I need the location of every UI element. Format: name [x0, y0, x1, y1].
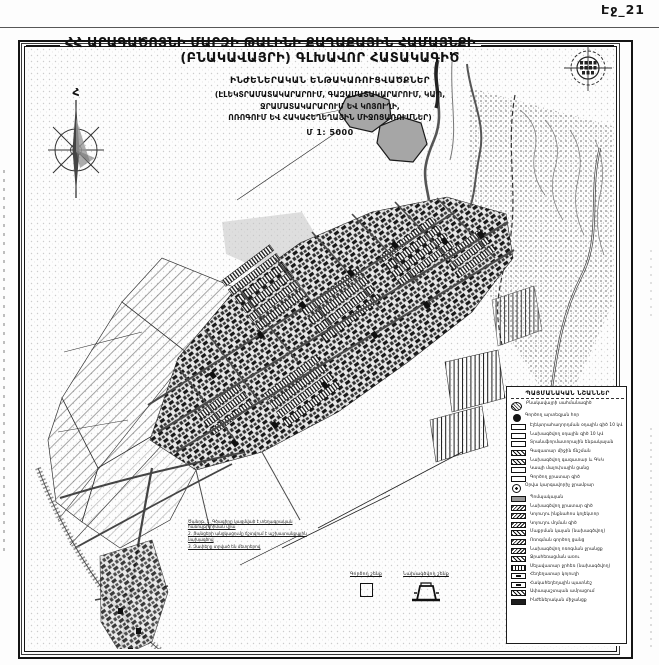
- subtitle-line2: (ԷԼԵԿՏՐԱՄԱՏԱԿԱՐԱՐՈՒՄ, ԳԱԶԱՄԱՏԱԿԱՐԱՐՈՒՄ, …: [158, 90, 502, 100]
- legend-item: Հակահեղեղային պատնեշ: [511, 582, 624, 588]
- plan-sheet: Էջ_21 ՀՀ ԱՐԱԳԱԾՈՏՆԻ ՄԱՐԶԻ ԹԱԼԻՆԻ ՔԱՂԱՔԱՅ…: [0, 0, 659, 665]
- legend-item: Բնակավայրի սահմանագիծ: [511, 402, 624, 411]
- notes-block: Ծանոթ. 1. Գծագիրը կազմված է տեղագրական հ…: [188, 519, 308, 551]
- legend-item: Գործող ջրատար գիծ: [511, 476, 624, 482]
- rect-hatch2-icon: [511, 522, 526, 528]
- legend-item: Նախագծվող ոռոգման ջրանցք: [511, 548, 624, 554]
- dark-circle-icon: [513, 414, 521, 422]
- top-rule-line: [0, 27, 659, 28]
- legend-item: Էլեկտրահաղորդման օդային գիծ 10 կՎ: [511, 424, 624, 430]
- note-line: Ծանոթ. 1. Գծագիրը կազմված է տեղագրական հ…: [188, 519, 308, 530]
- note-line: 2. Ցանցերի անցկացումը ճշտվում է աշխատանք…: [188, 531, 308, 542]
- legend-items: Բնակավայրի սահմանագիծԳործող արտեզյան հոր…: [511, 402, 624, 605]
- legend-item: Կապի մալուխային ցանց: [511, 467, 624, 473]
- legend-item: Սելավատար ջրհեռ (նախագծվող): [511, 565, 624, 571]
- subtitle-line4: ՈՌՈԳՈՒՄ ԵՎ ՀԱԿԱՀԵՂԵՂԱՅԻՆ ՄԻՋՈՑԱՌՈՒՄՆԵՐ): [158, 113, 502, 123]
- legend-item-label: Նախագծվող ոռոգման ջրանցք: [530, 548, 603, 553]
- rect-hatch-icon: [511, 450, 526, 456]
- legend-item-label: Հակահեղեղային պատնեշ: [530, 582, 592, 587]
- footer-symbol-existing-label: Գործող շենք: [340, 572, 392, 577]
- subtitle-line1: ԻՆԺԵՆԵՐԱԿԱՆ ԵՆԹԱԿԱՌՈՒՑՎԱԾՔՆԵՐ: [158, 76, 502, 88]
- hatch-blob-icon: [511, 402, 522, 411]
- sheet-title-line1: ՀՀ ԱՐԱԳԱԾՈՏՆԻ ՄԱՐԶԻ ԹԱԼԻՆԻ ՔԱՂԱՔԱՅԻՆ ՀԱՄ…: [65, 36, 476, 51]
- legend-item: Մաքրման կայան (նախագծվող): [511, 530, 624, 536]
- legend-item: Գործող արտեզյան հոր: [511, 414, 624, 422]
- legend-item-label: Գործող արտեզյան հոր: [525, 414, 579, 419]
- rect-dark-icon: [511, 599, 526, 605]
- legend-item: Ինժեներական միջանցք: [511, 599, 624, 605]
- footer-symbol-existing: Գործող շենք: [340, 572, 392, 604]
- legend-box: ՊԱՅՄԱՆԱԿԱՆ ՆՇԱՆՆԵՐ Բնակավայրի սահմանագիծ…: [506, 386, 627, 644]
- rect-gray-icon: [511, 496, 526, 502]
- compass-rose-icon: Հ: [44, 78, 110, 202]
- rect-outline-icon: [511, 424, 526, 430]
- rect-vlines-icon: [511, 565, 526, 571]
- rect-hatch-icon: [511, 556, 526, 562]
- legend-item-label: Ափապաշտպան ամրացում: [530, 590, 595, 595]
- legend-item: Տրանսֆորմատորային ենթակայան: [511, 441, 624, 447]
- legend-item-label: Կապի մալուխային ցանց: [530, 467, 589, 472]
- rect-outline-icon: [511, 433, 526, 439]
- legend-item: Պոմպակայան: [511, 496, 624, 502]
- legend-item-label: Գազատար միջին ճնշման: [530, 450, 591, 455]
- legend-item: Նախագծվող ջրատար գիծ: [511, 505, 624, 511]
- legend-item: Կոյուղու ինքնահոս կոլեկտոր: [511, 513, 624, 519]
- legend-item-label: Կոյուղու մղման գիծ: [530, 522, 577, 527]
- legend-item-label: Սելավատար ջրհեռ (նախագծվող): [530, 565, 610, 570]
- legend-item-label: Բնակավայրի սահմանագիծ: [526, 402, 592, 407]
- rect-hatch-icon: [511, 459, 526, 465]
- rect-hatch2-icon: [511, 539, 526, 545]
- legend-item-label: Տրանսֆորմատորային ենթակայան: [530, 441, 614, 446]
- legend-item-label: Պոմպակայան: [530, 496, 563, 501]
- legend-item-label: Ինժեներական միջանցք: [530, 599, 587, 604]
- page-number-label: Էջ_21: [601, 2, 645, 17]
- seal-stamp-icon: [562, 44, 614, 94]
- legend-item: Նախագծվող գազատար և ԳԿԿ: [511, 459, 624, 465]
- compass-north-label: Հ: [72, 86, 79, 99]
- footer-symbols: Գործող շենք Նախագծվող շենք: [340, 572, 452, 604]
- legend-item-label: Կոյուղու ինքնահոս կոլեկտոր: [530, 513, 599, 518]
- footer-symbol-planned-label: Նախագծվող շենք: [400, 572, 452, 577]
- sheet-title-line2: (ԲՆԱԿԱՎԱՅՐԻ) ԳԼԽԱՎՈՐ ՀԱՏԱԿԱԳԻԾ: [26, 51, 614, 66]
- legend-item: Ափապաշտպան ամրացում: [511, 590, 624, 596]
- legend-item: Հեղեղատար կոյուղի: [511, 573, 624, 579]
- map-scale-label: Մ 1: 5000: [158, 128, 502, 138]
- rect-inner-icon: [511, 582, 526, 588]
- rect-hatch2-icon: [511, 548, 526, 554]
- legend-item-label: Ջրահեռացման առու: [530, 556, 580, 561]
- rect-hatch2-icon: [511, 505, 526, 511]
- legend-item-label: Էլեկտրահաղորդման օդային գիծ 10 կՎ: [530, 424, 623, 429]
- subtitle-block: ԻՆԺԵՆԵՐԱԿԱՆ ԵՆԹԱԿԱՌՈՒՑՎԱԾՔՆԵՐ (ԷԼԵԿՏՐԱՄԱ…: [158, 76, 502, 139]
- legend-item-label: Ոռոգման գործող ցանց: [530, 539, 585, 544]
- legend-item-label: Նախագծվող գազատար և ԳԿԿ: [530, 459, 604, 464]
- subtitle-line3: ՋՐԱՄԱՏԱԿԱՐԱՐՈՒՄ ԵՎ ԿՈՅՈՒՂԻ,: [158, 102, 502, 112]
- legend-item: Ջրահեռացման առու: [511, 556, 624, 562]
- legend-item-label: Մաքրման կայան (նախագծվող): [530, 530, 605, 535]
- rect-hatch2-icon: [511, 513, 526, 519]
- title-rule-left: [26, 41, 60, 47]
- rect-hatch-icon: [511, 530, 526, 536]
- legend-item-label: Գործող ջրատար գիծ: [530, 476, 580, 481]
- rect-inner-icon: [511, 573, 526, 579]
- rect-outline-icon: [511, 476, 526, 482]
- legend-item: Նախագծվող օդային գիծ 10 կՎ: [511, 433, 624, 439]
- gear-circle-icon: [512, 484, 521, 493]
- legend-item: Օրվա կարգավորիչ ջրամբար: [511, 484, 624, 493]
- title-row: ՀՀ ԱՐԱԳԱԾՈՏՆԻ ՄԱՐԶԻ ԹԱԼԻՆԻ ՔԱՂԱՔԱՅԻՆ ՀԱՄ…: [26, 36, 614, 51]
- note-line: 3. Չափերը տրված են մետրերով: [188, 544, 308, 549]
- legend-item-label: Նախագծվող ջրատար գիծ: [530, 505, 593, 510]
- footer-symbol-planned: Նախագծվող շենք: [400, 572, 452, 604]
- rect-outline-icon: [511, 467, 526, 473]
- legend-header: ՊԱՅՄԱՆԱԿԱՆ ՆՇԱՆՆԵՐ: [511, 390, 624, 399]
- legend-item: Գազատար միջին ճնշման: [511, 450, 624, 456]
- existing-building-icon: [360, 583, 373, 597]
- legend-item: Կոյուղու մղման գիծ: [511, 522, 624, 528]
- rect-hatch-icon: [511, 590, 526, 596]
- planned-building-icon: [409, 580, 443, 604]
- legend-item-label: Նախագծվող օդային գիծ 10 կՎ: [530, 433, 603, 438]
- legend-item-label: Օրվա կարգավորիչ ջրամբար: [525, 484, 594, 489]
- legend-item: Ոռոգման գործող ցանց: [511, 539, 624, 545]
- legend-item-label: Հեղեղատար կոյուղի: [530, 573, 579, 578]
- rect-outline-icon: [511, 441, 526, 447]
